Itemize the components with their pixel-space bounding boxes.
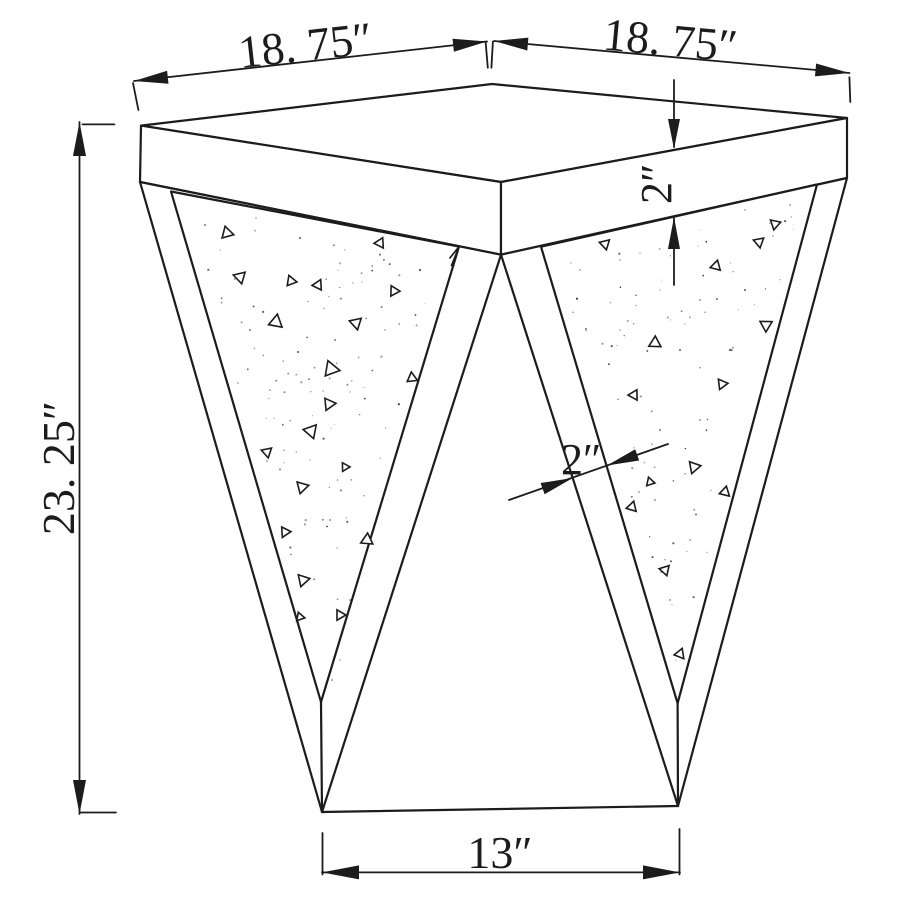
svg-text:2″: 2″ — [561, 435, 601, 484]
svg-text:13″: 13″ — [467, 827, 532, 878]
svg-text:2″: 2″ — [632, 164, 681, 204]
svg-text:23. 25″: 23. 25″ — [33, 401, 84, 535]
